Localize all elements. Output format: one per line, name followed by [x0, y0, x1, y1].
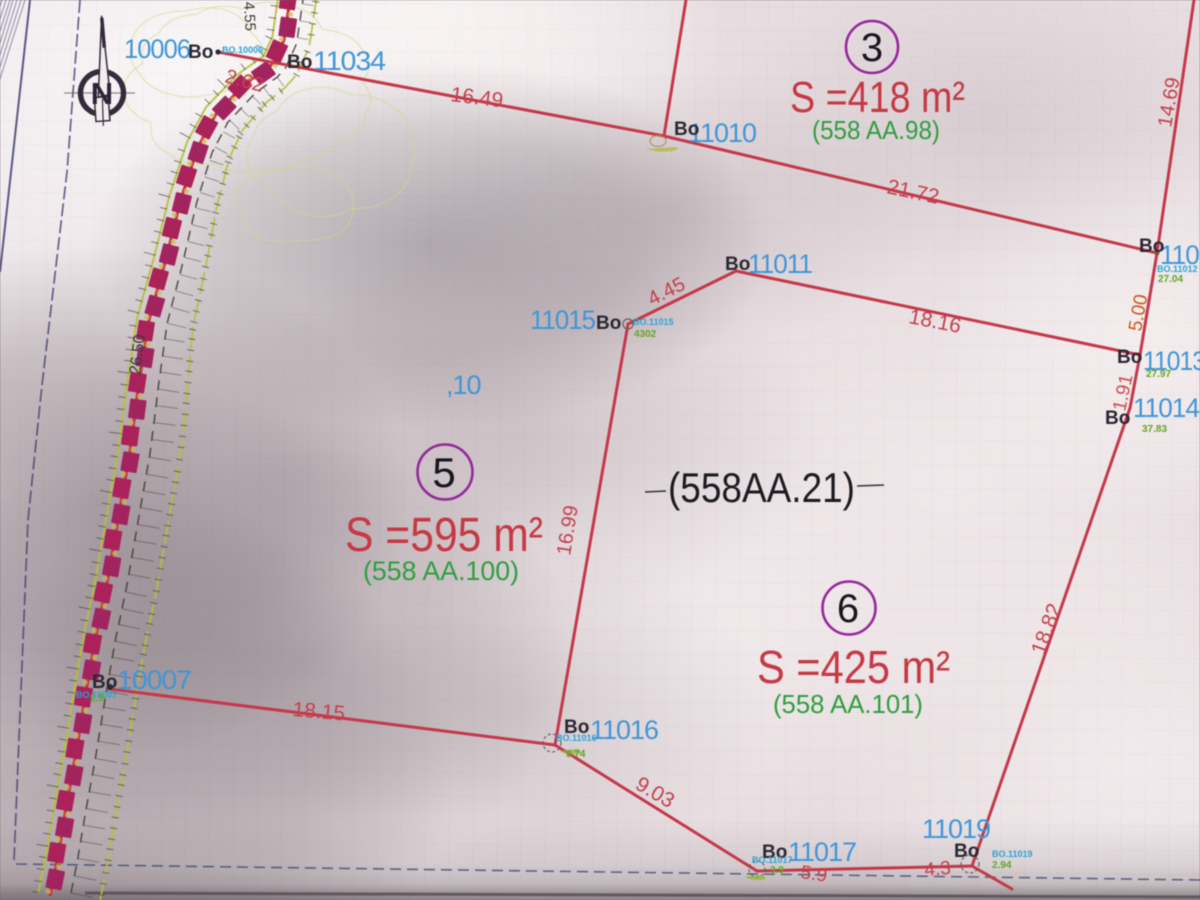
- svg-text:(558 AA.101): (558 AA.101): [773, 689, 923, 719]
- svg-text:11011: 11011: [748, 249, 812, 279]
- svg-text:,10: ,10: [446, 370, 481, 400]
- svg-text:5.9: 5.9: [799, 862, 828, 886]
- svg-text:S =425 m²: S =425 m²: [757, 641, 950, 693]
- svg-text:11014: 11014: [1133, 393, 1200, 423]
- svg-text:11034: 11034: [313, 46, 386, 76]
- svg-text:6: 6: [837, 587, 859, 631]
- svg-text:BO.11015: BO.11015: [633, 317, 674, 327]
- svg-text:3.9: 3.9: [770, 865, 784, 876]
- svg-text:4.3: 4.3: [924, 858, 952, 881]
- svg-text:4.55: 4.55: [240, 1, 259, 31]
- svg-text:10007: 10007: [117, 665, 191, 695]
- svg-text:BO.11012: BO.11012: [1157, 264, 1198, 274]
- svg-text:2.94: 2.94: [992, 860, 1012, 871]
- svg-text:27.97: 27.97: [1146, 369, 1171, 380]
- svg-text:Bo: Bo: [188, 42, 213, 63]
- svg-text:Bo: Bo: [954, 841, 979, 862]
- svg-text:Bo: Bo: [1117, 347, 1142, 368]
- svg-text:Bo: Bo: [674, 119, 699, 140]
- svg-text:2.9: 2.9: [90, 693, 104, 704]
- svg-text:BO.11016: BO.11016: [556, 733, 597, 743]
- svg-text:S =595 m²: S =595 m²: [345, 509, 543, 562]
- svg-text:10006: 10006: [124, 34, 190, 64]
- svg-text:(558 AA.98): (558 AA.98): [812, 115, 940, 145]
- svg-text:11015: 11015: [530, 305, 595, 335]
- svg-text:3: 3: [861, 26, 883, 70]
- svg-text:27.04: 27.04: [1158, 274, 1183, 285]
- svg-text:11017: 11017: [788, 837, 856, 867]
- svg-text:11016: 11016: [590, 715, 658, 745]
- svg-text:(558AA.21): (558AA.21): [668, 464, 855, 511]
- svg-text:N: N: [91, 76, 113, 111]
- svg-text:BO.11017: BO.11017: [752, 855, 793, 865]
- svg-text:37.83: 37.83: [1142, 424, 1167, 435]
- svg-text:BO.10006: BO.10006: [222, 45, 263, 55]
- svg-text:18.15: 18.15: [292, 698, 346, 725]
- svg-text:Bo: Bo: [725, 254, 750, 275]
- svg-text:3.74: 3.74: [566, 749, 586, 760]
- svg-text:Bo: Bo: [287, 52, 312, 73]
- svg-text:BO.11019: BO.11019: [992, 849, 1033, 859]
- svg-text:4302: 4302: [634, 329, 657, 340]
- svg-text:5: 5: [432, 449, 455, 496]
- svg-text:Bo: Bo: [596, 313, 621, 334]
- svg-text:(558 AA.100): (558 AA.100): [363, 556, 519, 586]
- svg-text:11019: 11019: [922, 814, 990, 844]
- svg-text:Bo: Bo: [1139, 236, 1164, 257]
